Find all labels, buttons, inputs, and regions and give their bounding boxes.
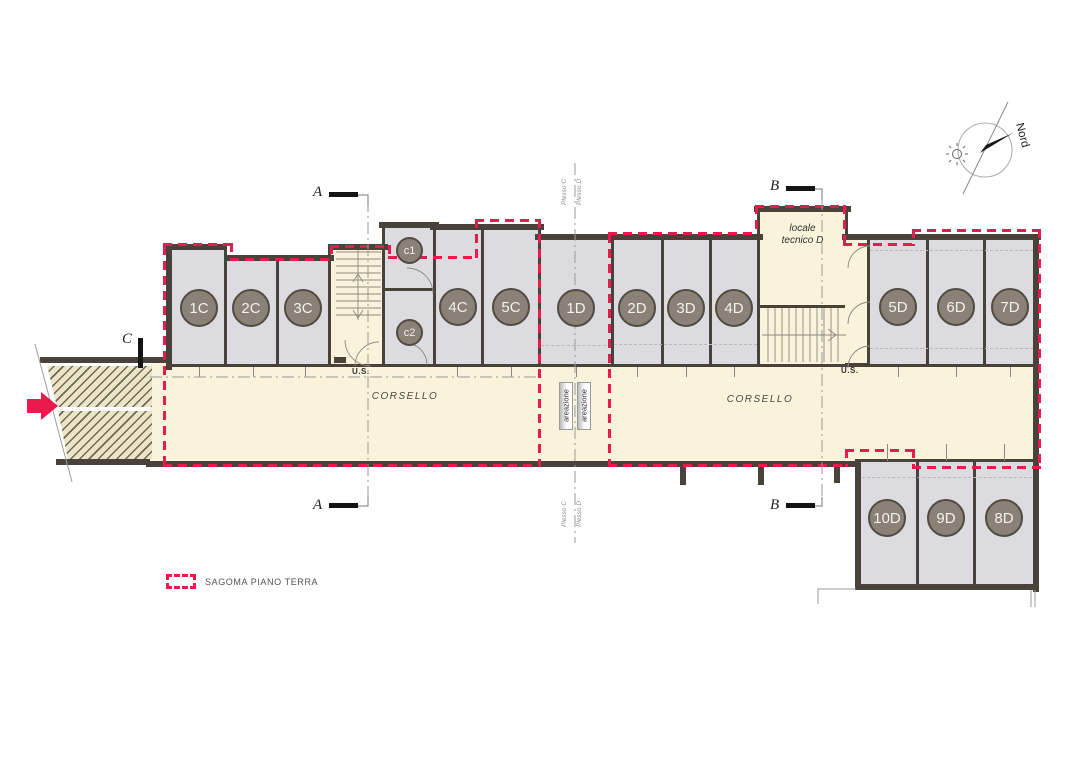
section-c-label: C xyxy=(122,331,132,348)
pier xyxy=(680,465,686,485)
wall xyxy=(855,584,1036,590)
door-clearance-line xyxy=(862,477,1032,478)
wall xyxy=(855,461,861,590)
section-a-bar-top xyxy=(329,192,358,197)
legend-swatch xyxy=(166,574,196,589)
sagoma-outline xyxy=(163,246,166,467)
door-tick xyxy=(686,367,687,377)
corsello-label-left: CORSELLO xyxy=(350,391,460,402)
exit-label-d: U.S. xyxy=(841,366,859,375)
garage-badge: 6D xyxy=(937,288,975,326)
corsello-area xyxy=(150,363,1035,463)
sagoma-outline xyxy=(845,449,915,452)
sagoma-outline xyxy=(1038,229,1041,467)
sagoma-outline xyxy=(912,466,1041,469)
stairwell-d xyxy=(757,305,848,367)
corsello-label-right: CORSELLO xyxy=(705,394,815,405)
pier xyxy=(758,465,764,485)
technical-room-line1: locale xyxy=(757,223,848,235)
sagoma-outline xyxy=(475,219,478,259)
plesso-c-label-top: Plesso C xyxy=(561,170,572,214)
door-clearance-line xyxy=(870,250,1033,251)
sagoma-outline xyxy=(330,245,390,248)
wall xyxy=(535,234,617,240)
north-pointer xyxy=(980,133,1013,153)
areazione-box: areazione xyxy=(559,382,573,430)
door-tick xyxy=(1010,367,1011,377)
garage-badge: 10D xyxy=(868,499,906,537)
garage-badge: 4D xyxy=(715,289,753,327)
door-tick xyxy=(1004,444,1005,461)
floor-plan: Nord 1C 2C 3C 4C 5C 1D 2D 3D 4D 5D 6D 7D… xyxy=(0,0,1076,780)
room-badge: c2 xyxy=(396,319,423,346)
section-b-bar-top xyxy=(786,186,815,191)
sagoma-outline xyxy=(608,232,758,235)
garage-badge: 1C xyxy=(180,289,218,327)
wall xyxy=(842,234,1041,240)
sagoma-outline xyxy=(843,243,915,246)
ramp-top-wall xyxy=(40,357,168,363)
sagoma-outline xyxy=(538,219,541,467)
plesso-d-label-top: Plesso D xyxy=(576,170,587,214)
door-tick xyxy=(637,367,638,377)
section-b-bar-bottom xyxy=(786,503,815,508)
exit-label-c: U.S. xyxy=(352,367,370,376)
threshold xyxy=(334,357,346,363)
north-arrow: Nord xyxy=(946,102,1031,194)
door-clearance-line xyxy=(541,345,611,346)
door-tick xyxy=(253,367,254,377)
wall xyxy=(166,244,172,370)
stairwell-c xyxy=(328,247,385,367)
door-tick xyxy=(898,367,899,377)
section-b-label-bottom: B xyxy=(770,497,779,514)
terrace-outline xyxy=(818,589,856,604)
garage-badge: 9D xyxy=(927,499,965,537)
section-c-bar xyxy=(138,338,143,368)
sagoma-outline xyxy=(755,205,846,208)
garage-badge: 8D xyxy=(985,499,1023,537)
door-tick xyxy=(576,367,577,377)
technical-room-label: locale tecnico D xyxy=(757,223,848,247)
sagoma-outline xyxy=(163,464,541,467)
sagoma-outline xyxy=(475,219,541,222)
garage-badge: 2C xyxy=(232,289,270,327)
pier xyxy=(834,465,840,483)
section-a-label-top: A xyxy=(313,184,322,201)
ramp-bottom-wall xyxy=(56,459,150,465)
door-clearance-line xyxy=(870,348,1033,349)
door-tick xyxy=(199,367,200,377)
sagoma-outline xyxy=(608,234,611,467)
entry-arrow-icon xyxy=(27,392,58,420)
door-tick xyxy=(457,367,458,377)
garage-badge: 3C xyxy=(284,289,322,327)
section-a-bar-bottom xyxy=(329,503,358,508)
door-tick xyxy=(305,367,306,377)
terrace-outline xyxy=(1031,590,1035,607)
sagoma-outline xyxy=(912,229,1038,232)
garage-badge: 5D xyxy=(879,288,917,326)
areazione-box: areazione xyxy=(577,382,591,430)
sagoma-outline xyxy=(230,258,332,261)
door-tick xyxy=(734,367,735,377)
garage-badge: 7D xyxy=(991,288,1029,326)
garage-badge: 3D xyxy=(667,289,705,327)
garage-badge: 2D xyxy=(618,289,656,327)
garage-badge: 4C xyxy=(439,288,477,326)
door-clearance-line xyxy=(614,344,757,345)
door-tick xyxy=(956,367,957,377)
north-label: Nord xyxy=(1013,122,1031,149)
sagoma-outline xyxy=(163,243,233,246)
technical-room-line2: tecnico D xyxy=(757,235,848,247)
door-tick xyxy=(946,444,947,461)
wall xyxy=(430,224,544,230)
legend-label: SAGOMA PIANO TERRA xyxy=(205,577,318,587)
sagoma-outline xyxy=(608,464,848,467)
ramp-hatch-lower xyxy=(44,411,152,459)
ramp-hatch-upper xyxy=(44,366,152,407)
garage-badge: 1D xyxy=(557,289,595,327)
room-badge: c1 xyxy=(396,237,423,264)
section-a-label-bottom: A xyxy=(313,497,322,514)
garage-badge: 5C xyxy=(492,288,530,326)
sun-icon xyxy=(946,143,968,165)
plesso-d-label-bottom: Plesso D xyxy=(576,492,587,536)
door-tick xyxy=(511,367,512,377)
plesso-c-label-bottom: Plesso C xyxy=(561,492,572,536)
door-tick xyxy=(887,444,888,461)
section-b-label-top: B xyxy=(770,178,779,195)
